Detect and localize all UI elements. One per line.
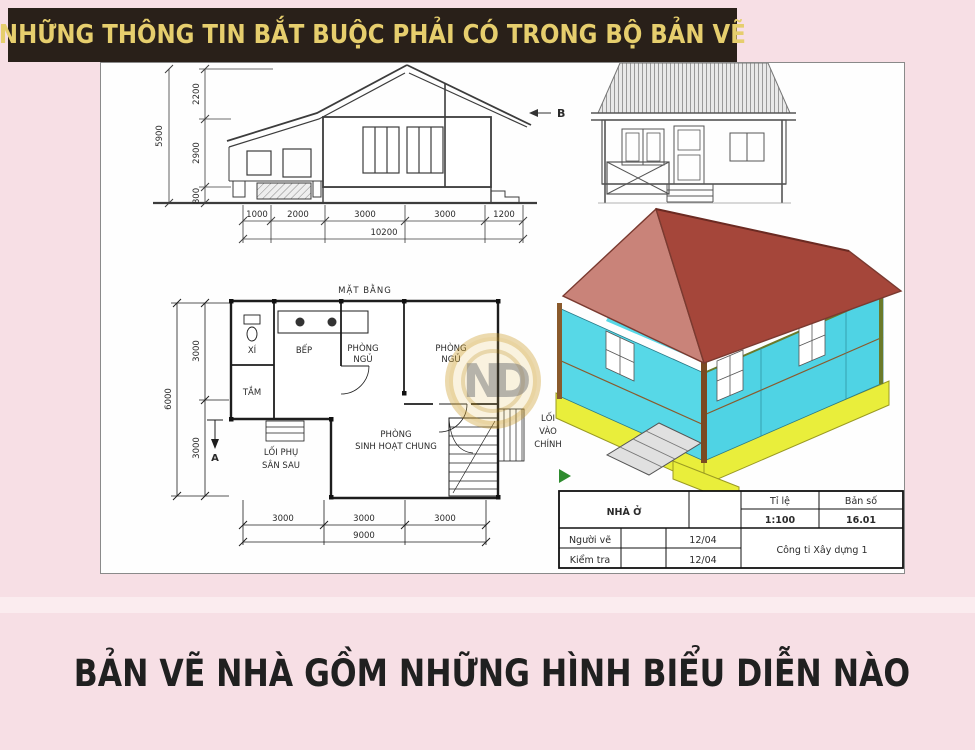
watermark-logo: ND xyxy=(449,337,537,425)
house-3d-view xyxy=(556,209,901,505)
dim-3000-a: 3000 xyxy=(354,210,376,220)
footer: BẢN VẼ NHÀ GỒM NHỮNG HÌNH BIỂU DIỄN NÀO xyxy=(0,652,975,695)
title-block-scale-label: Tỉ lệ xyxy=(769,496,790,507)
title-block-sheet-label: Bản số xyxy=(845,496,877,507)
title-block-drawn-value: 12/04 xyxy=(689,535,716,546)
banner-title: NHỮNG THÔNG TIN BẮT BUỘC PHẢI CÓ TRONG B… xyxy=(0,20,746,50)
title-block-scale-value: 1:100 xyxy=(765,515,796,526)
drawing-canvas: 5900 2200 2900 800 1000 2000 3000 3000 1… xyxy=(101,63,904,573)
dim-3000-b: 3000 xyxy=(434,210,456,220)
dim-plan-9000: 9000 xyxy=(353,531,375,541)
dim-2200: 2200 xyxy=(192,83,202,105)
dim-plan-6000: 6000 xyxy=(164,388,174,410)
dim-1000: 1000 xyxy=(246,210,268,220)
banner: NHỮNG THÔNG TIN BẮT BUỘC PHẢI CÓ TRONG B… xyxy=(8,8,737,62)
dim-plan-3000-left-a: 3000 xyxy=(192,340,202,362)
dim-5900: 5900 xyxy=(155,125,165,147)
dim-2000: 2000 xyxy=(287,210,309,220)
room-label-living-line2: SINH HOẠT CHUNG xyxy=(355,442,437,452)
section-marker-a: A xyxy=(207,420,223,464)
label-main-entry-line2: VÀO xyxy=(539,425,557,437)
front-elevation-view: B xyxy=(529,63,796,203)
title-block-checked-label: Kiểm tra xyxy=(570,555,610,566)
title-block-company: Công ti Xây dựng 1 xyxy=(776,545,867,556)
room-label-bedroom1-line2: NGỦ xyxy=(353,353,372,365)
dim-800: 800 xyxy=(192,188,202,204)
title-block-drawn-label: Người vẽ xyxy=(569,535,611,546)
label-side-entry-line2: SÂN SAU xyxy=(262,459,300,471)
label-main-entry-line3: CHÍNH xyxy=(534,438,562,450)
green-pointer-icon xyxy=(559,469,571,483)
label-main-entry-line1: LỐI xyxy=(541,411,555,424)
arrow-b-icon xyxy=(529,109,538,117)
dim-plan-3000-b: 3000 xyxy=(353,514,375,524)
drawing-sheet: 5900 2200 2900 800 1000 2000 3000 3000 1… xyxy=(100,62,905,574)
footer-title: BẢN VẼ NHÀ GỒM NHỮNG HÌNH BIỂU DIỄN NÀO xyxy=(74,652,910,695)
title-block-sheet-value: 16.01 xyxy=(846,515,876,526)
room-label-toilet: XÍ xyxy=(248,344,257,356)
room-label-kitchen: BẾP xyxy=(296,344,312,356)
title-block-checked-value: 12/04 xyxy=(689,555,716,566)
elevation-marker-b: B xyxy=(557,107,565,120)
label-side-entry-line1: LỐI PHỤ xyxy=(264,445,298,458)
dim-2900: 2900 xyxy=(192,142,202,164)
title-block: NHÀ Ở Tỉ lệ Bản số 1:100 16.01 Người vẽ … xyxy=(559,491,903,568)
room-label-bedroom1-line1: PHÒNG xyxy=(347,342,378,354)
dim-plan-3000-a: 3000 xyxy=(272,514,294,524)
svg-text:A: A xyxy=(211,453,219,464)
section-elevation-view: 5900 2200 2900 800 1000 2000 3000 3000 1… xyxy=(153,65,537,243)
dim-plan-3000-c: 3000 xyxy=(434,514,456,524)
dim-plan-3000-left-b: 3000 xyxy=(192,437,202,459)
background-band xyxy=(0,597,975,613)
watermark-text: ND xyxy=(463,354,529,408)
room-label-living-line1: PHÒNG xyxy=(380,428,411,440)
floor-plan-title: MẶT BẰNG xyxy=(338,283,392,296)
dim-1200: 1200 xyxy=(493,210,515,220)
title-block-project: NHÀ Ở xyxy=(607,505,643,518)
dim-10200: 10200 xyxy=(370,228,397,238)
